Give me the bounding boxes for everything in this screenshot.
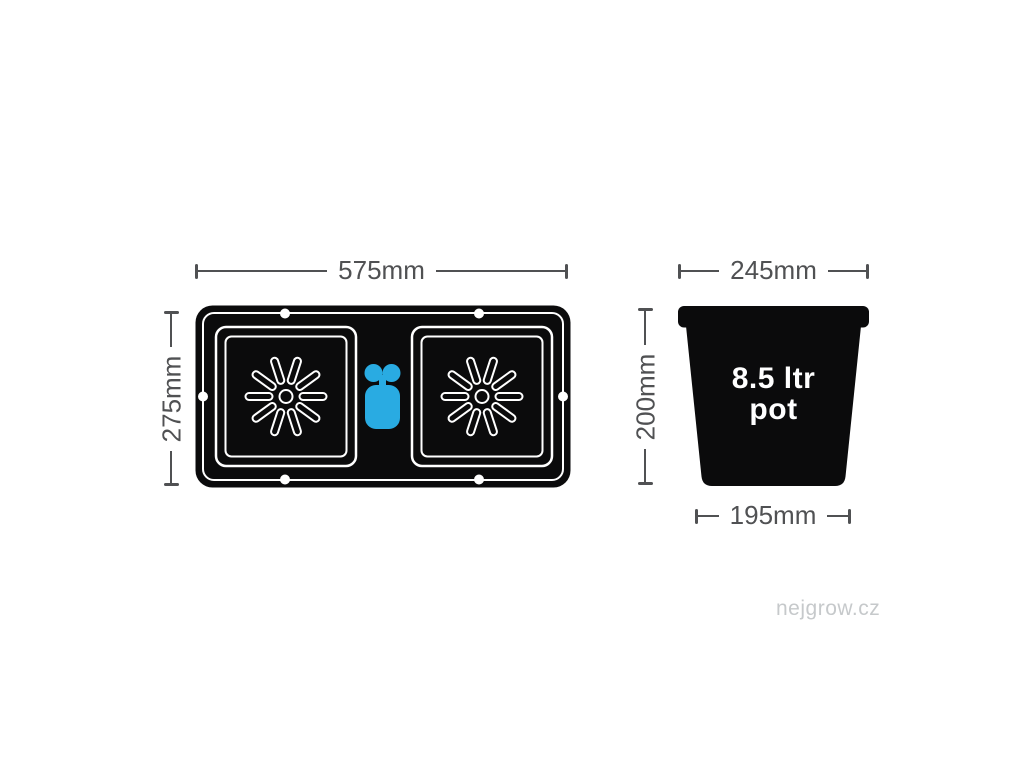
pot-height-dimension: 200mm xyxy=(631,308,659,485)
product-dimensions-diagram: 575mm 275mm xyxy=(0,0,1024,768)
dimension-tick xyxy=(848,509,851,524)
tray-width-label: 575mm xyxy=(338,257,425,283)
dimension-line xyxy=(698,515,719,518)
tray-depth-dimension: 275mm xyxy=(157,311,185,486)
dimension-line xyxy=(827,515,848,518)
tray-depth-label: 275mm xyxy=(157,351,185,447)
dimension-line xyxy=(681,270,719,273)
pot-height-label: 200mm xyxy=(631,349,659,445)
dimension-tick xyxy=(164,483,179,486)
dimension-tick xyxy=(638,482,653,485)
pot-top-width-label: 245mm xyxy=(730,257,817,283)
dimension-line xyxy=(170,314,173,347)
dimension-line xyxy=(828,270,866,273)
pot-capacity-label: 8.5 ltr pot xyxy=(678,363,869,425)
dimension-line xyxy=(170,451,173,484)
tray-width-dimension: 575mm xyxy=(195,257,568,285)
dimension-tick xyxy=(866,264,869,279)
dimension-line xyxy=(436,270,565,273)
dimension-tick xyxy=(565,264,568,279)
pot-base-width-label: 195mm xyxy=(730,502,817,528)
pot-base-width-dimension: 195mm xyxy=(695,502,851,530)
dimension-line xyxy=(198,270,327,273)
pot-capacity-line1: 8.5 ltr xyxy=(678,363,869,394)
watermark: nejgrow.cz xyxy=(776,596,880,621)
pot-capacity-line2: pot xyxy=(678,394,869,425)
tray-top-view xyxy=(195,305,571,488)
pot-top-width-dimension: 245mm xyxy=(678,257,869,285)
dimension-line xyxy=(644,449,647,483)
pot-rim xyxy=(678,306,869,328)
dimension-line xyxy=(644,311,647,345)
